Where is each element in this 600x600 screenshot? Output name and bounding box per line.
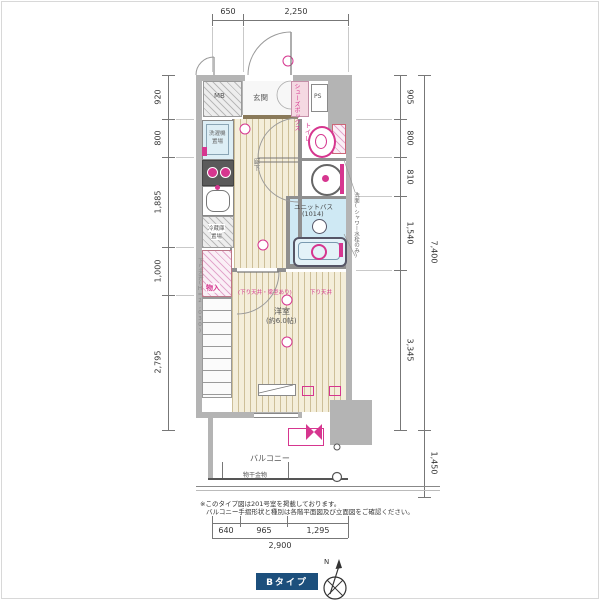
dim-tick — [348, 14, 349, 26]
closet-label: 物入 — [206, 283, 220, 293]
dim-tick — [418, 430, 431, 431]
ext-line — [348, 27, 349, 72]
ground-line-2 — [196, 490, 440, 491]
plan-marker — [258, 240, 269, 251]
dim-tick — [240, 516, 241, 527]
ext-line — [356, 270, 392, 271]
wall-room-top-b — [277, 268, 286, 272]
dim-bottom-640: 640 — [218, 526, 233, 535]
plan-marker — [282, 337, 293, 348]
plan-marker — [282, 295, 293, 306]
dim-left-2795: 2,795 — [154, 351, 163, 374]
dim-tick — [418, 497, 431, 498]
dim-tick — [287, 516, 288, 527]
dim-bottom-1295: 1,295 — [307, 526, 330, 535]
dim-tick — [394, 430, 407, 431]
dim-bottom-2900: 2,900 — [269, 541, 292, 550]
wall-vanity-bath — [286, 196, 346, 199]
dim-tick — [212, 516, 213, 538]
dim-line-right-inner — [400, 75, 401, 430]
dim-top-2250: 2,250 — [285, 7, 308, 16]
dim-tick — [394, 270, 407, 271]
ext-line — [212, 27, 213, 72]
dim-left-1000: 1,000 — [154, 260, 163, 283]
dim-tick — [212, 14, 213, 26]
wall-bath-left — [286, 199, 290, 266]
dim-line-bottom-total — [212, 538, 348, 539]
dim-tick — [394, 119, 407, 120]
plan-marker — [283, 56, 294, 67]
dim-tick — [162, 75, 175, 76]
dim-tick — [418, 75, 431, 76]
ground-line-1 — [196, 486, 440, 487]
dim-tick — [162, 247, 175, 248]
washer-tap-icon — [202, 147, 207, 156]
dim-right-800: 800 — [406, 130, 415, 145]
faucet-icon — [215, 185, 220, 190]
balcony-post — [288, 462, 289, 479]
dim-left-800: 800 — [154, 130, 163, 145]
dim-bottom-965: 965 — [256, 526, 271, 535]
dim-right-810: 810 — [406, 169, 415, 184]
type-badge: Bタイプ — [256, 573, 318, 590]
ext-line — [176, 119, 194, 120]
dim-right-1450: 1,450 — [430, 452, 439, 475]
ext-line — [356, 119, 392, 120]
dim-tick — [162, 295, 175, 296]
bath-drain-icon — [312, 219, 327, 234]
floorplan-image: 650 2,250 920 800 1,885 1,000 2,795 905 … — [0, 0, 600, 600]
ext-line — [356, 157, 392, 158]
balcony-side-wall — [208, 418, 213, 480]
ps-label: PS — [314, 93, 321, 100]
ext-line — [176, 295, 194, 296]
fridge-label-2: 置場 — [211, 232, 222, 240]
ext-line — [176, 247, 194, 248]
vanity-counter-strip — [340, 164, 344, 194]
outlet-icon — [329, 386, 341, 396]
dim-tick — [394, 196, 407, 197]
dim-left-920: 920 — [154, 89, 163, 104]
window-bottom — [254, 413, 298, 418]
washer-label-1: 洗濯機 — [209, 129, 226, 137]
fridge-space: 冷蔵庫 置場 — [202, 216, 234, 248]
toilet-bowl-icon — [308, 126, 336, 158]
mb-label: MB — [214, 92, 225, 100]
dim-line-left — [168, 75, 169, 430]
dim-right-905: 905 — [406, 89, 415, 104]
unit-bath-size: (1014) — [302, 210, 324, 218]
dropped-ceiling-room2-label: 下り天井 — [310, 288, 332, 296]
dim-top-650: 650 — [220, 7, 235, 16]
dim-tick — [243, 14, 244, 26]
bathtub-icon — [293, 237, 347, 267]
washer-pan: 洗濯機 置場 — [202, 120, 234, 160]
dim-right-1540: 1,540 — [406, 222, 415, 245]
ext-line — [176, 157, 194, 158]
dim-tick — [348, 516, 349, 538]
plan-marker — [240, 124, 251, 135]
outlet-icon — [302, 386, 314, 396]
dim-right-7400: 7,400 — [430, 241, 439, 264]
neighbor-block — [330, 400, 372, 445]
dropped-ceiling-side-label: 下り天井(H=2,030) — [197, 258, 203, 334]
balcony-label: バルコニー — [250, 453, 290, 464]
burner-icon — [207, 167, 218, 178]
ac-outdoor-unit-box — [288, 428, 324, 446]
washbasin-drain — [322, 175, 329, 182]
dim-line-top — [212, 20, 348, 21]
sink-basin-icon — [206, 190, 230, 212]
wall-corner-block — [328, 81, 346, 130]
dim-tick — [162, 430, 175, 431]
dim-line-bottom — [212, 523, 348, 524]
washer-label-2: 置場 — [212, 137, 223, 145]
dim-tick — [162, 119, 175, 120]
bathtub-tag — [339, 243, 343, 257]
kitchen-sink — [202, 186, 234, 216]
ext-line — [356, 196, 392, 197]
balcony-edge — [208, 478, 348, 480]
right-callout-label: 洗面(シャワー水栓のみ) — [353, 192, 359, 259]
note-line-2: バルコニー手摺形状と種別は各階平面図及び立面図をご確認ください。 — [206, 506, 414, 516]
hallway-label: 廊下 — [252, 158, 259, 171]
shoes-box-label: シューズボックス — [292, 83, 300, 131]
dim-tick — [162, 157, 175, 158]
dim-tick — [394, 157, 407, 158]
dim-tick — [394, 75, 407, 76]
window-symbol — [258, 384, 296, 396]
closet-shelves — [202, 297, 232, 398]
dim-left-1885: 1,885 — [154, 191, 163, 214]
burner-icon — [220, 167, 231, 178]
balcony-post — [222, 462, 223, 479]
washbasin-icon — [311, 164, 343, 196]
ext-line — [243, 27, 244, 72]
stove — [202, 160, 234, 186]
toilet-bowl-inner — [315, 134, 327, 149]
genkan-step — [243, 115, 298, 119]
fridge-label-1: 冷蔵庫 — [208, 224, 225, 232]
wall-toilet-vanity — [302, 158, 346, 161]
bathtub-faucet-icon — [311, 244, 327, 260]
genkan-label: 玄関 — [253, 92, 268, 103]
dim-right-3345: 3,345 — [406, 339, 415, 362]
western-room-size: (約6.0帖) — [266, 316, 297, 326]
dim-line-right-outer — [424, 75, 425, 497]
